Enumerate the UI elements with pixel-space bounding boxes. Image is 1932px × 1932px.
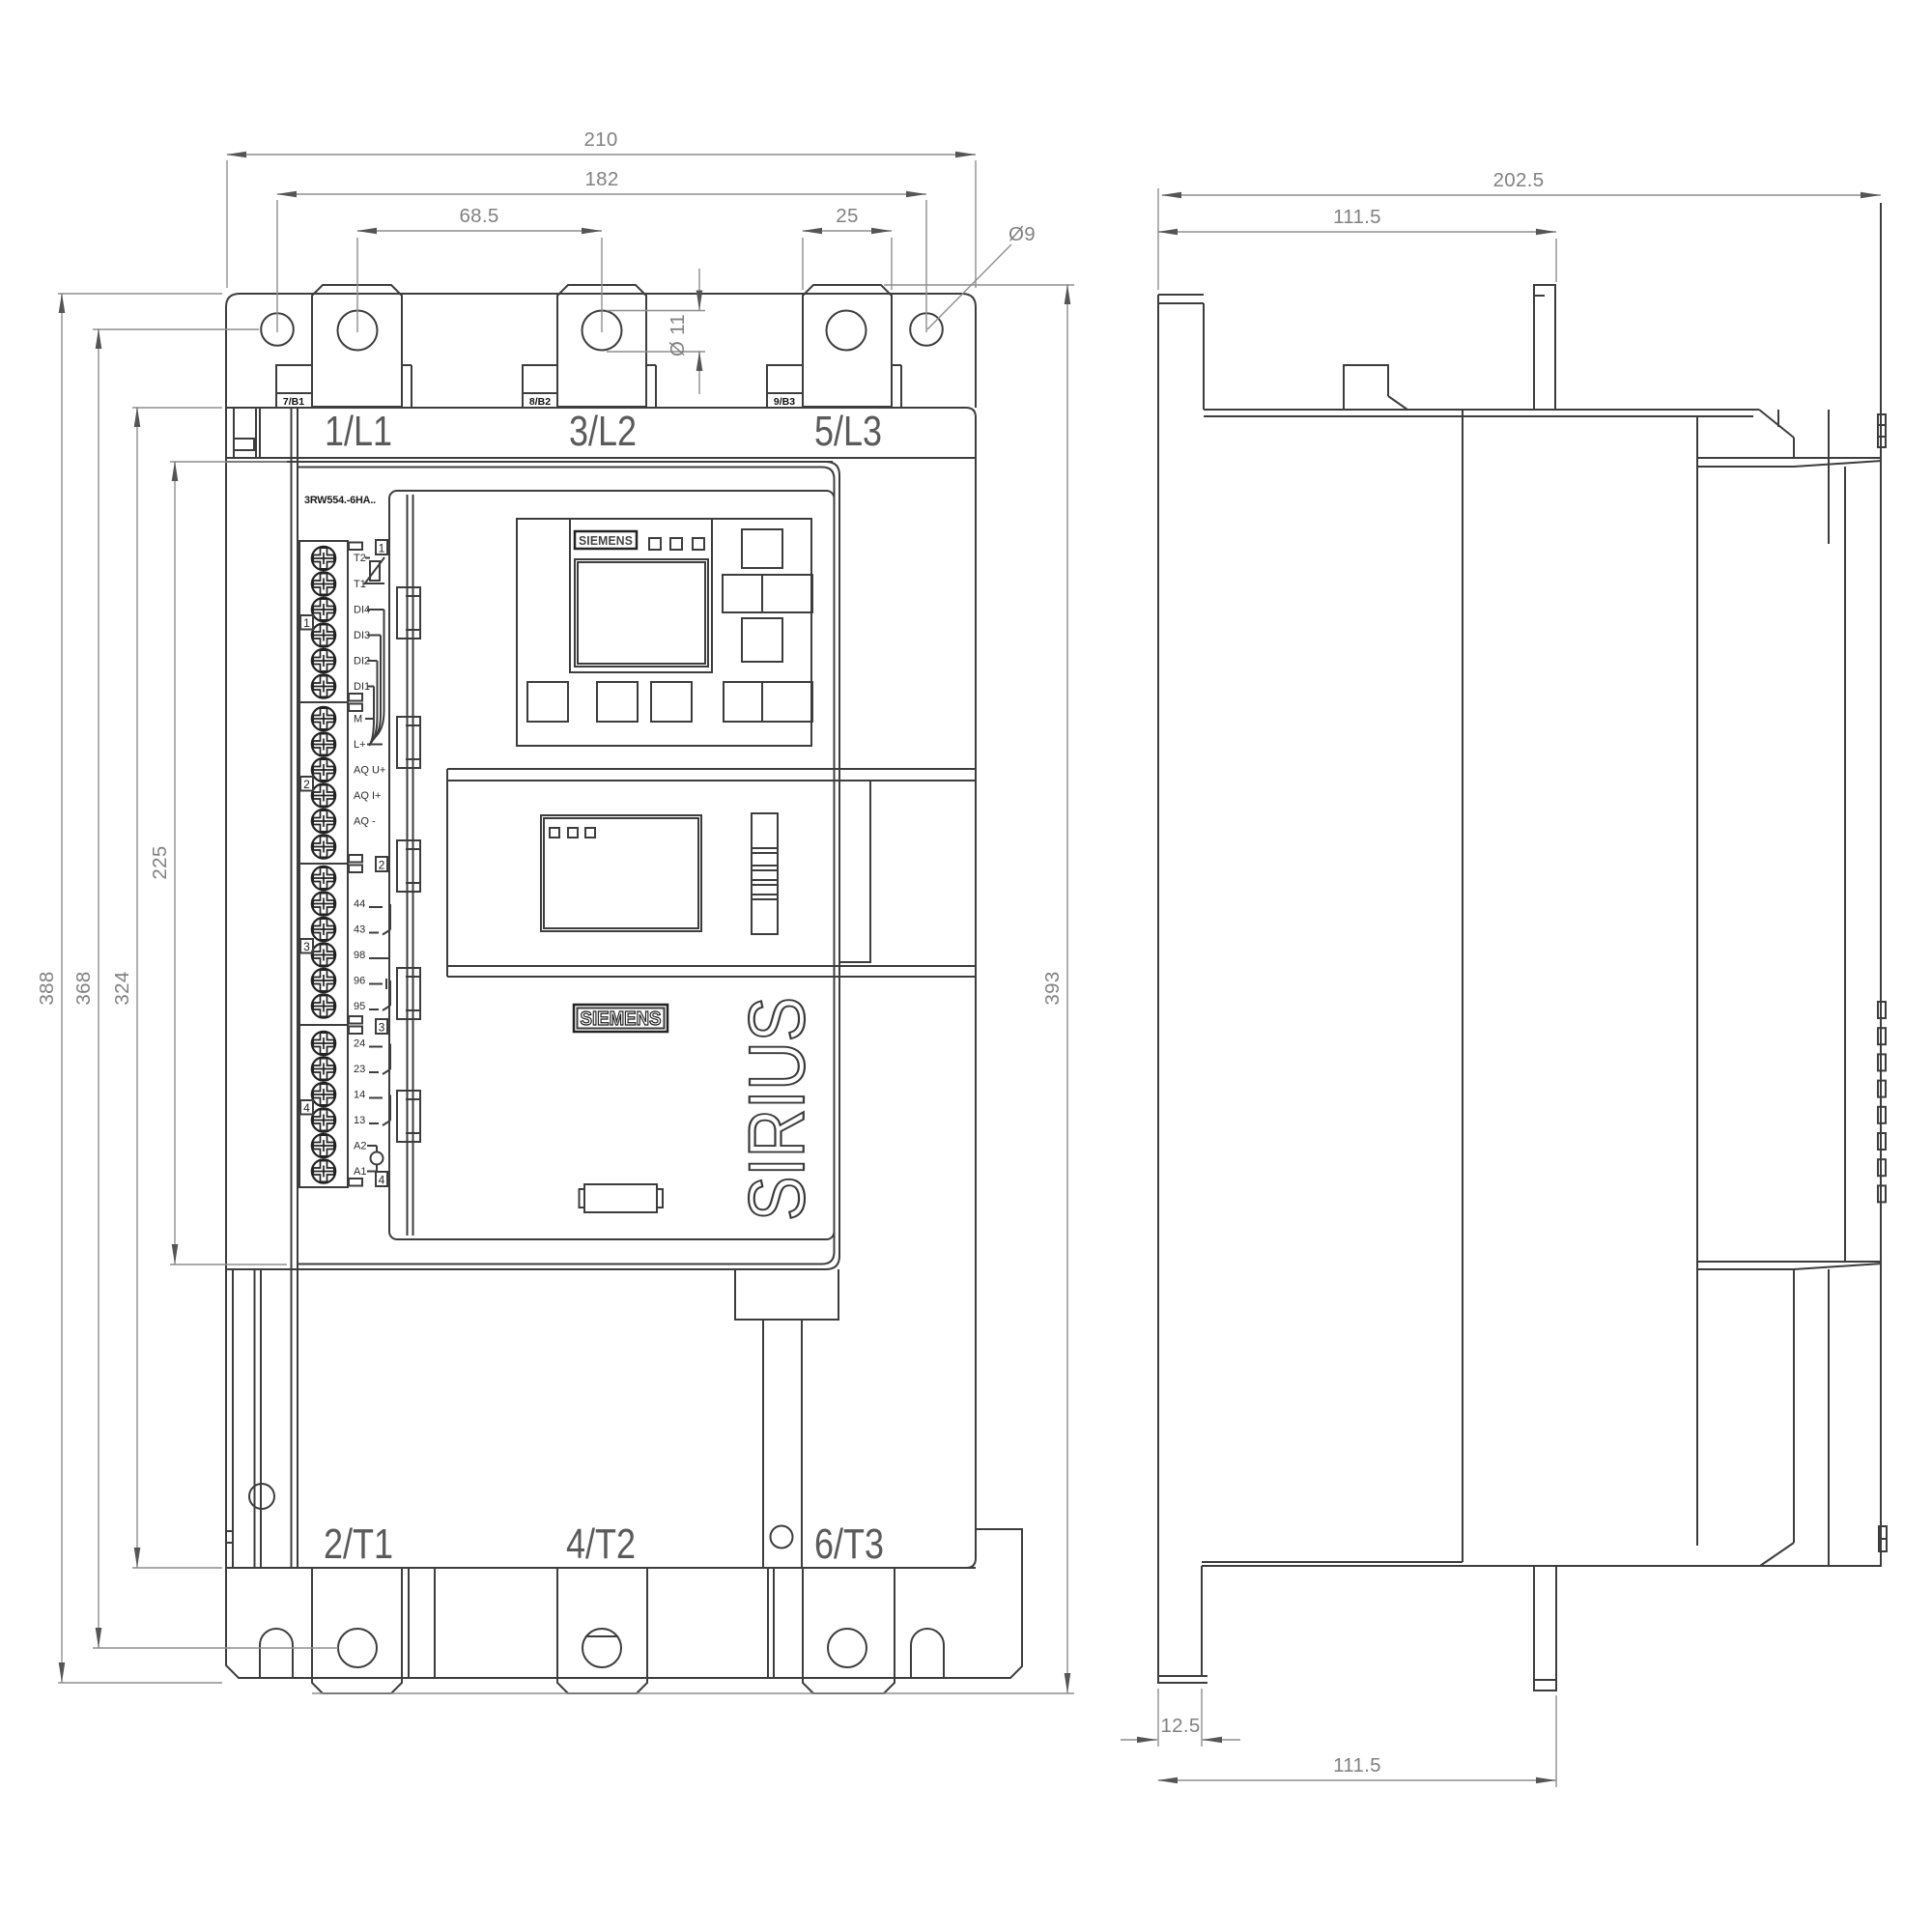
svg-text:4: 4 [303, 1101, 310, 1115]
svg-text:4: 4 [379, 1174, 385, 1187]
svg-text:5/L3: 5/L3 [814, 408, 882, 455]
svg-text:111.5: 111.5 [1333, 206, 1381, 228]
svg-text:2: 2 [379, 859, 385, 872]
svg-text:SIEMENS: SIEMENS [581, 1009, 662, 1030]
svg-text:95: 95 [354, 1001, 365, 1012]
svg-text:2/T1: 2/T1 [324, 1520, 393, 1568]
svg-text:368: 368 [72, 971, 95, 1005]
svg-text:Ø9: Ø9 [1009, 223, 1036, 245]
svg-text:25: 25 [836, 205, 858, 227]
svg-text:2: 2 [303, 778, 310, 791]
svg-text:324: 324 [111, 971, 133, 1005]
svg-text:9/B3: 9/B3 [774, 396, 795, 408]
svg-text:8/B2: 8/B2 [529, 396, 551, 408]
svg-text:210: 210 [583, 128, 617, 151]
svg-text:3: 3 [379, 1021, 385, 1035]
svg-text:111.5: 111.5 [1333, 1754, 1381, 1776]
svg-text:1: 1 [303, 616, 310, 630]
svg-text:182: 182 [584, 168, 618, 190]
svg-text:202.5: 202.5 [1493, 169, 1545, 191]
svg-text:225: 225 [149, 845, 171, 879]
svg-text:AQ U+: AQ U+ [354, 765, 385, 777]
svg-text:3RW554.-6HA..: 3RW554.-6HA.. [304, 495, 376, 506]
svg-text:12.5: 12.5 [1160, 1715, 1200, 1737]
svg-text:AQ -: AQ - [354, 816, 376, 828]
svg-text:SIEMENS: SIEMENS [579, 534, 633, 548]
svg-text:A1: A1 [354, 1166, 366, 1178]
svg-text:43: 43 [354, 924, 365, 936]
svg-text:388: 388 [36, 971, 58, 1005]
svg-text:M: M [354, 714, 362, 725]
svg-text:7/B1: 7/B1 [283, 396, 304, 408]
svg-text:3/L2: 3/L2 [569, 408, 637, 455]
svg-text:14: 14 [354, 1090, 365, 1101]
svg-text:4/T2: 4/T2 [566, 1520, 636, 1568]
svg-text:13: 13 [354, 1115, 365, 1126]
svg-text:1: 1 [379, 542, 385, 555]
svg-text:SIRIUS: SIRIUS [733, 997, 821, 1221]
svg-text:A2: A2 [354, 1141, 366, 1152]
svg-text:44: 44 [354, 898, 365, 910]
svg-text:98: 98 [354, 950, 365, 961]
svg-text:96: 96 [354, 976, 365, 987]
svg-text:T2: T2 [354, 553, 366, 564]
svg-text:L+: L+ [354, 739, 366, 751]
svg-text:393: 393 [1041, 971, 1064, 1005]
svg-text:AQ I+: AQ I+ [354, 790, 381, 802]
svg-text:23: 23 [354, 1064, 365, 1075]
svg-text:1/L1: 1/L1 [325, 408, 392, 455]
svg-text:6/T3: 6/T3 [814, 1520, 884, 1568]
svg-text:3: 3 [303, 940, 310, 953]
svg-text:68.5: 68.5 [459, 205, 498, 227]
svg-text:24: 24 [354, 1038, 365, 1050]
svg-text:Ø 11: Ø 11 [667, 314, 689, 356]
svg-text:T1: T1 [354, 579, 366, 590]
